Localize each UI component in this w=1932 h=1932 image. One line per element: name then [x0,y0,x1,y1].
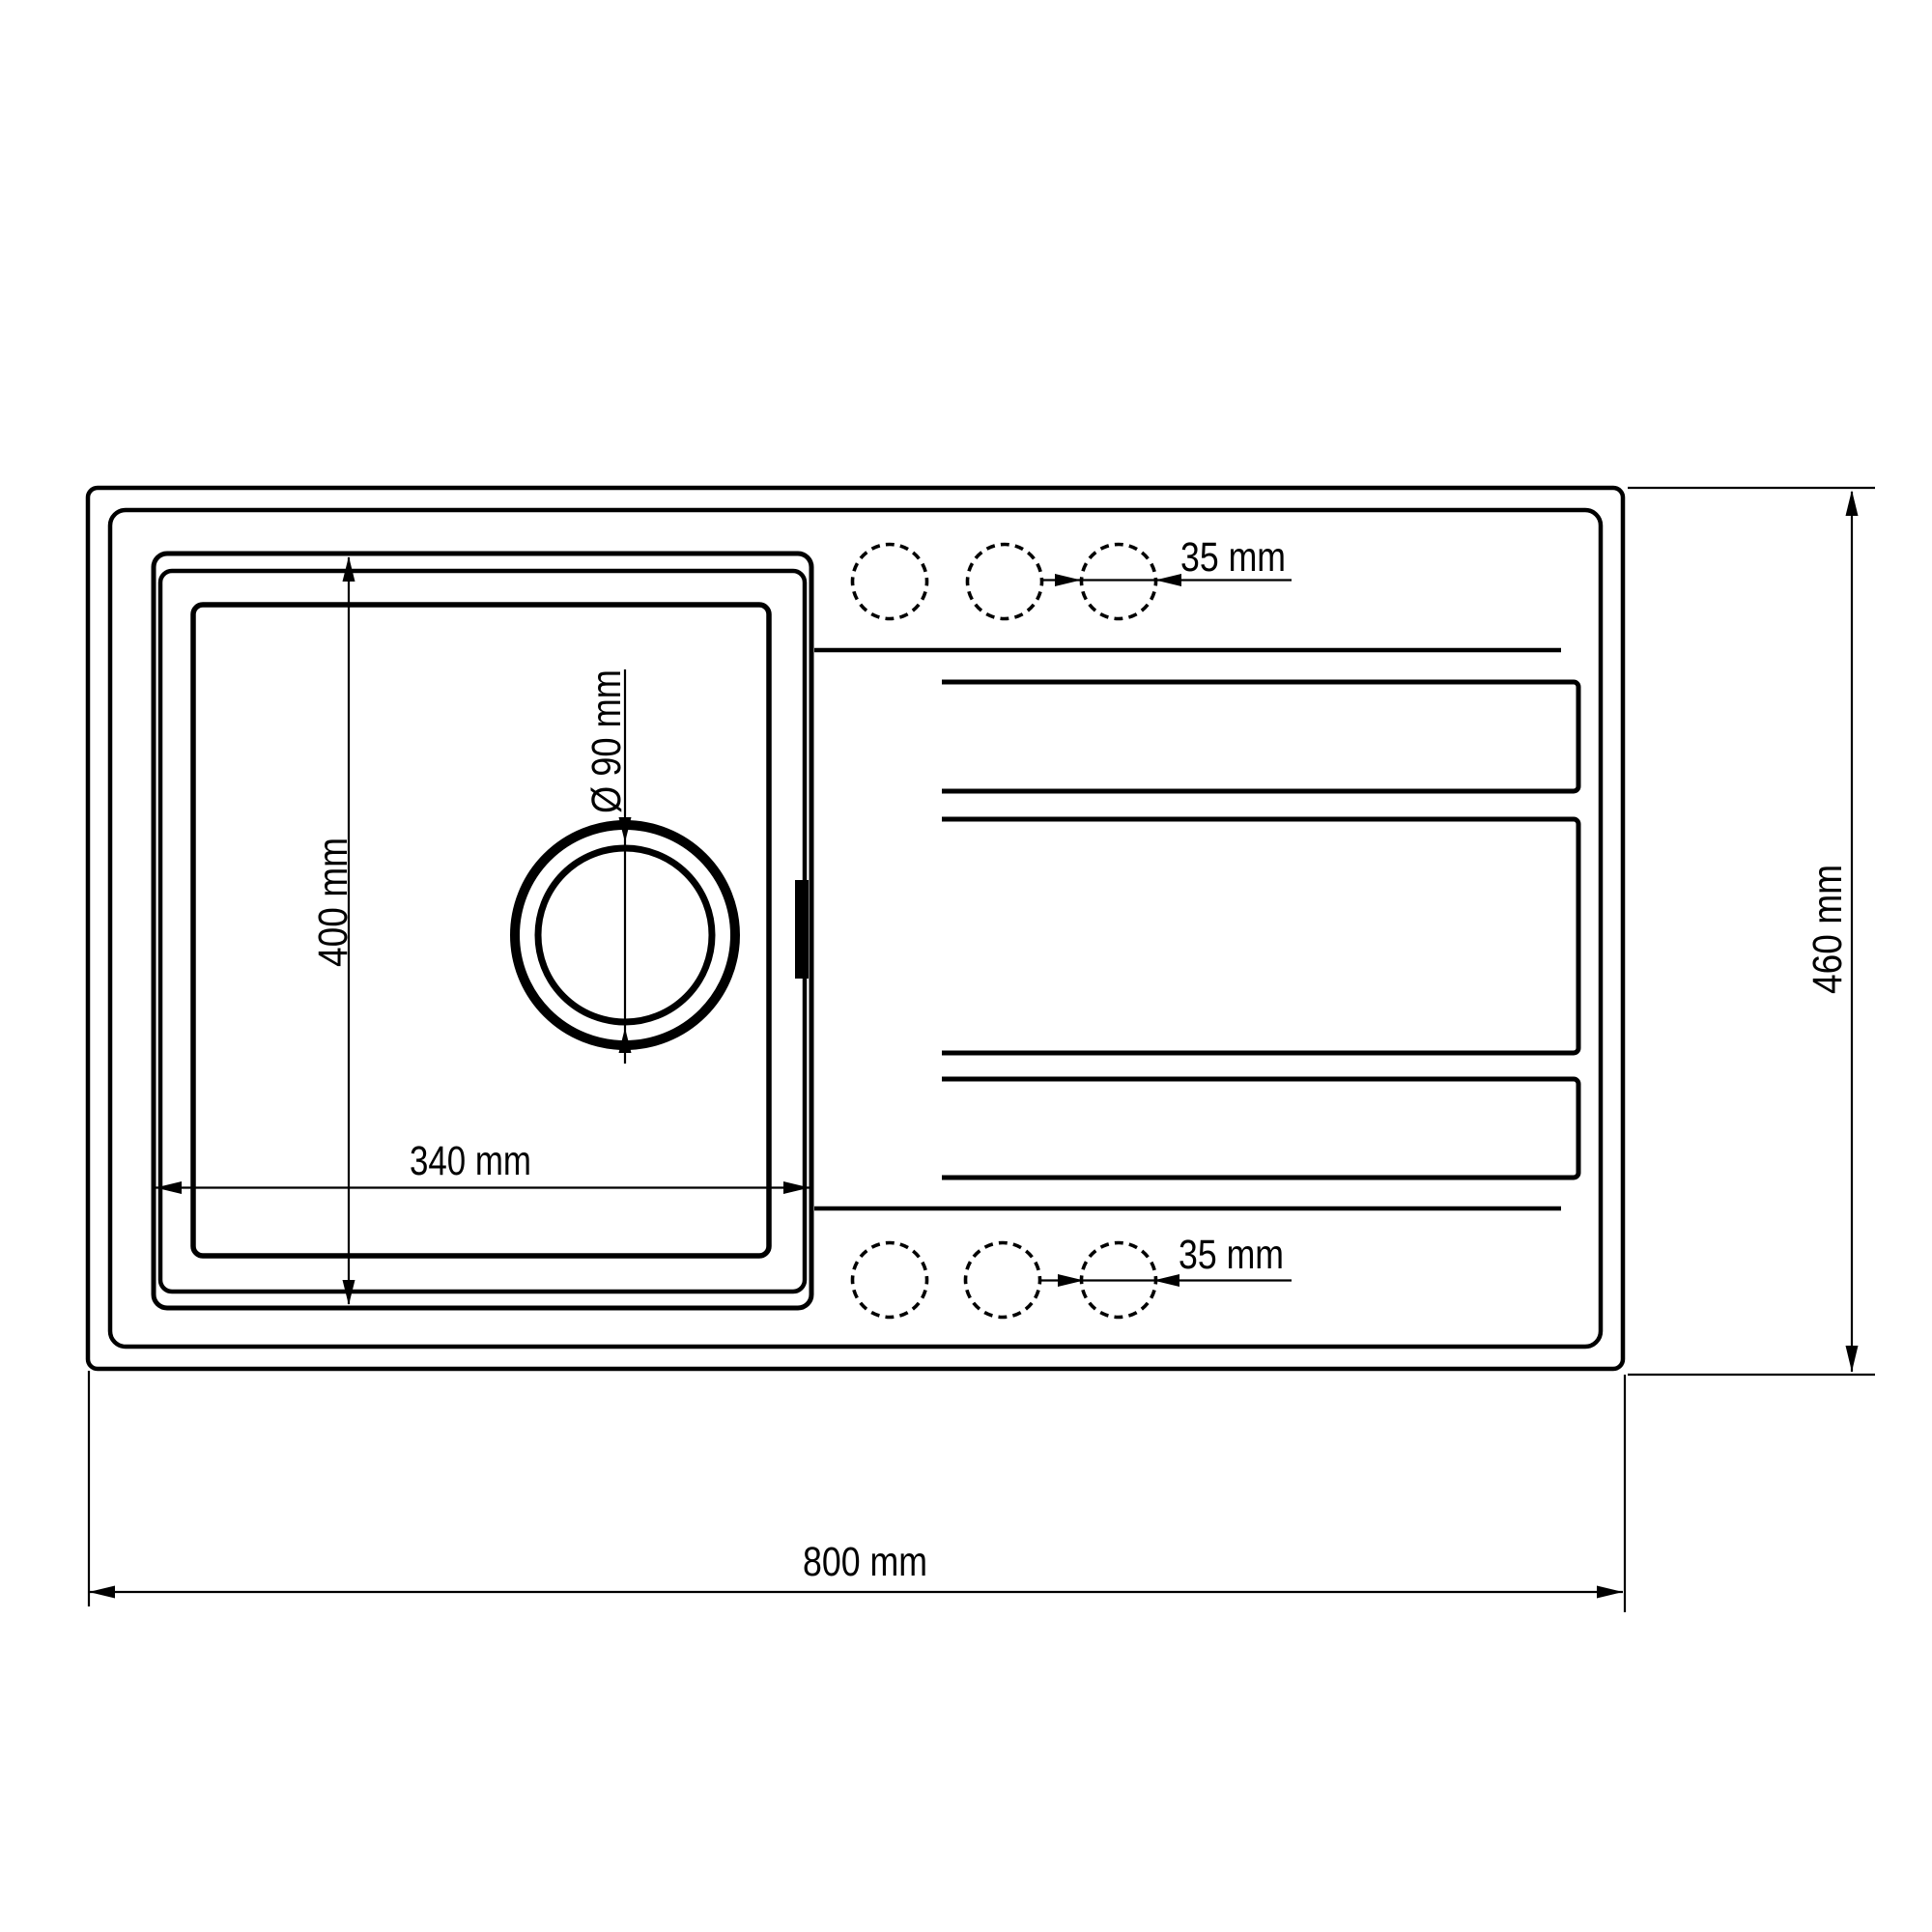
svg-text:800 mm: 800 mm [803,1539,927,1585]
svg-text:35 mm: 35 mm [1180,534,1286,581]
svg-text:Ø 90 mm: Ø 90 mm [583,669,630,813]
svg-text:340 mm: 340 mm [410,1138,531,1184]
svg-text:400 mm: 400 mm [310,838,356,967]
svg-text:460 mm: 460 mm [1804,865,1851,994]
svg-text:35 mm: 35 mm [1179,1232,1284,1278]
